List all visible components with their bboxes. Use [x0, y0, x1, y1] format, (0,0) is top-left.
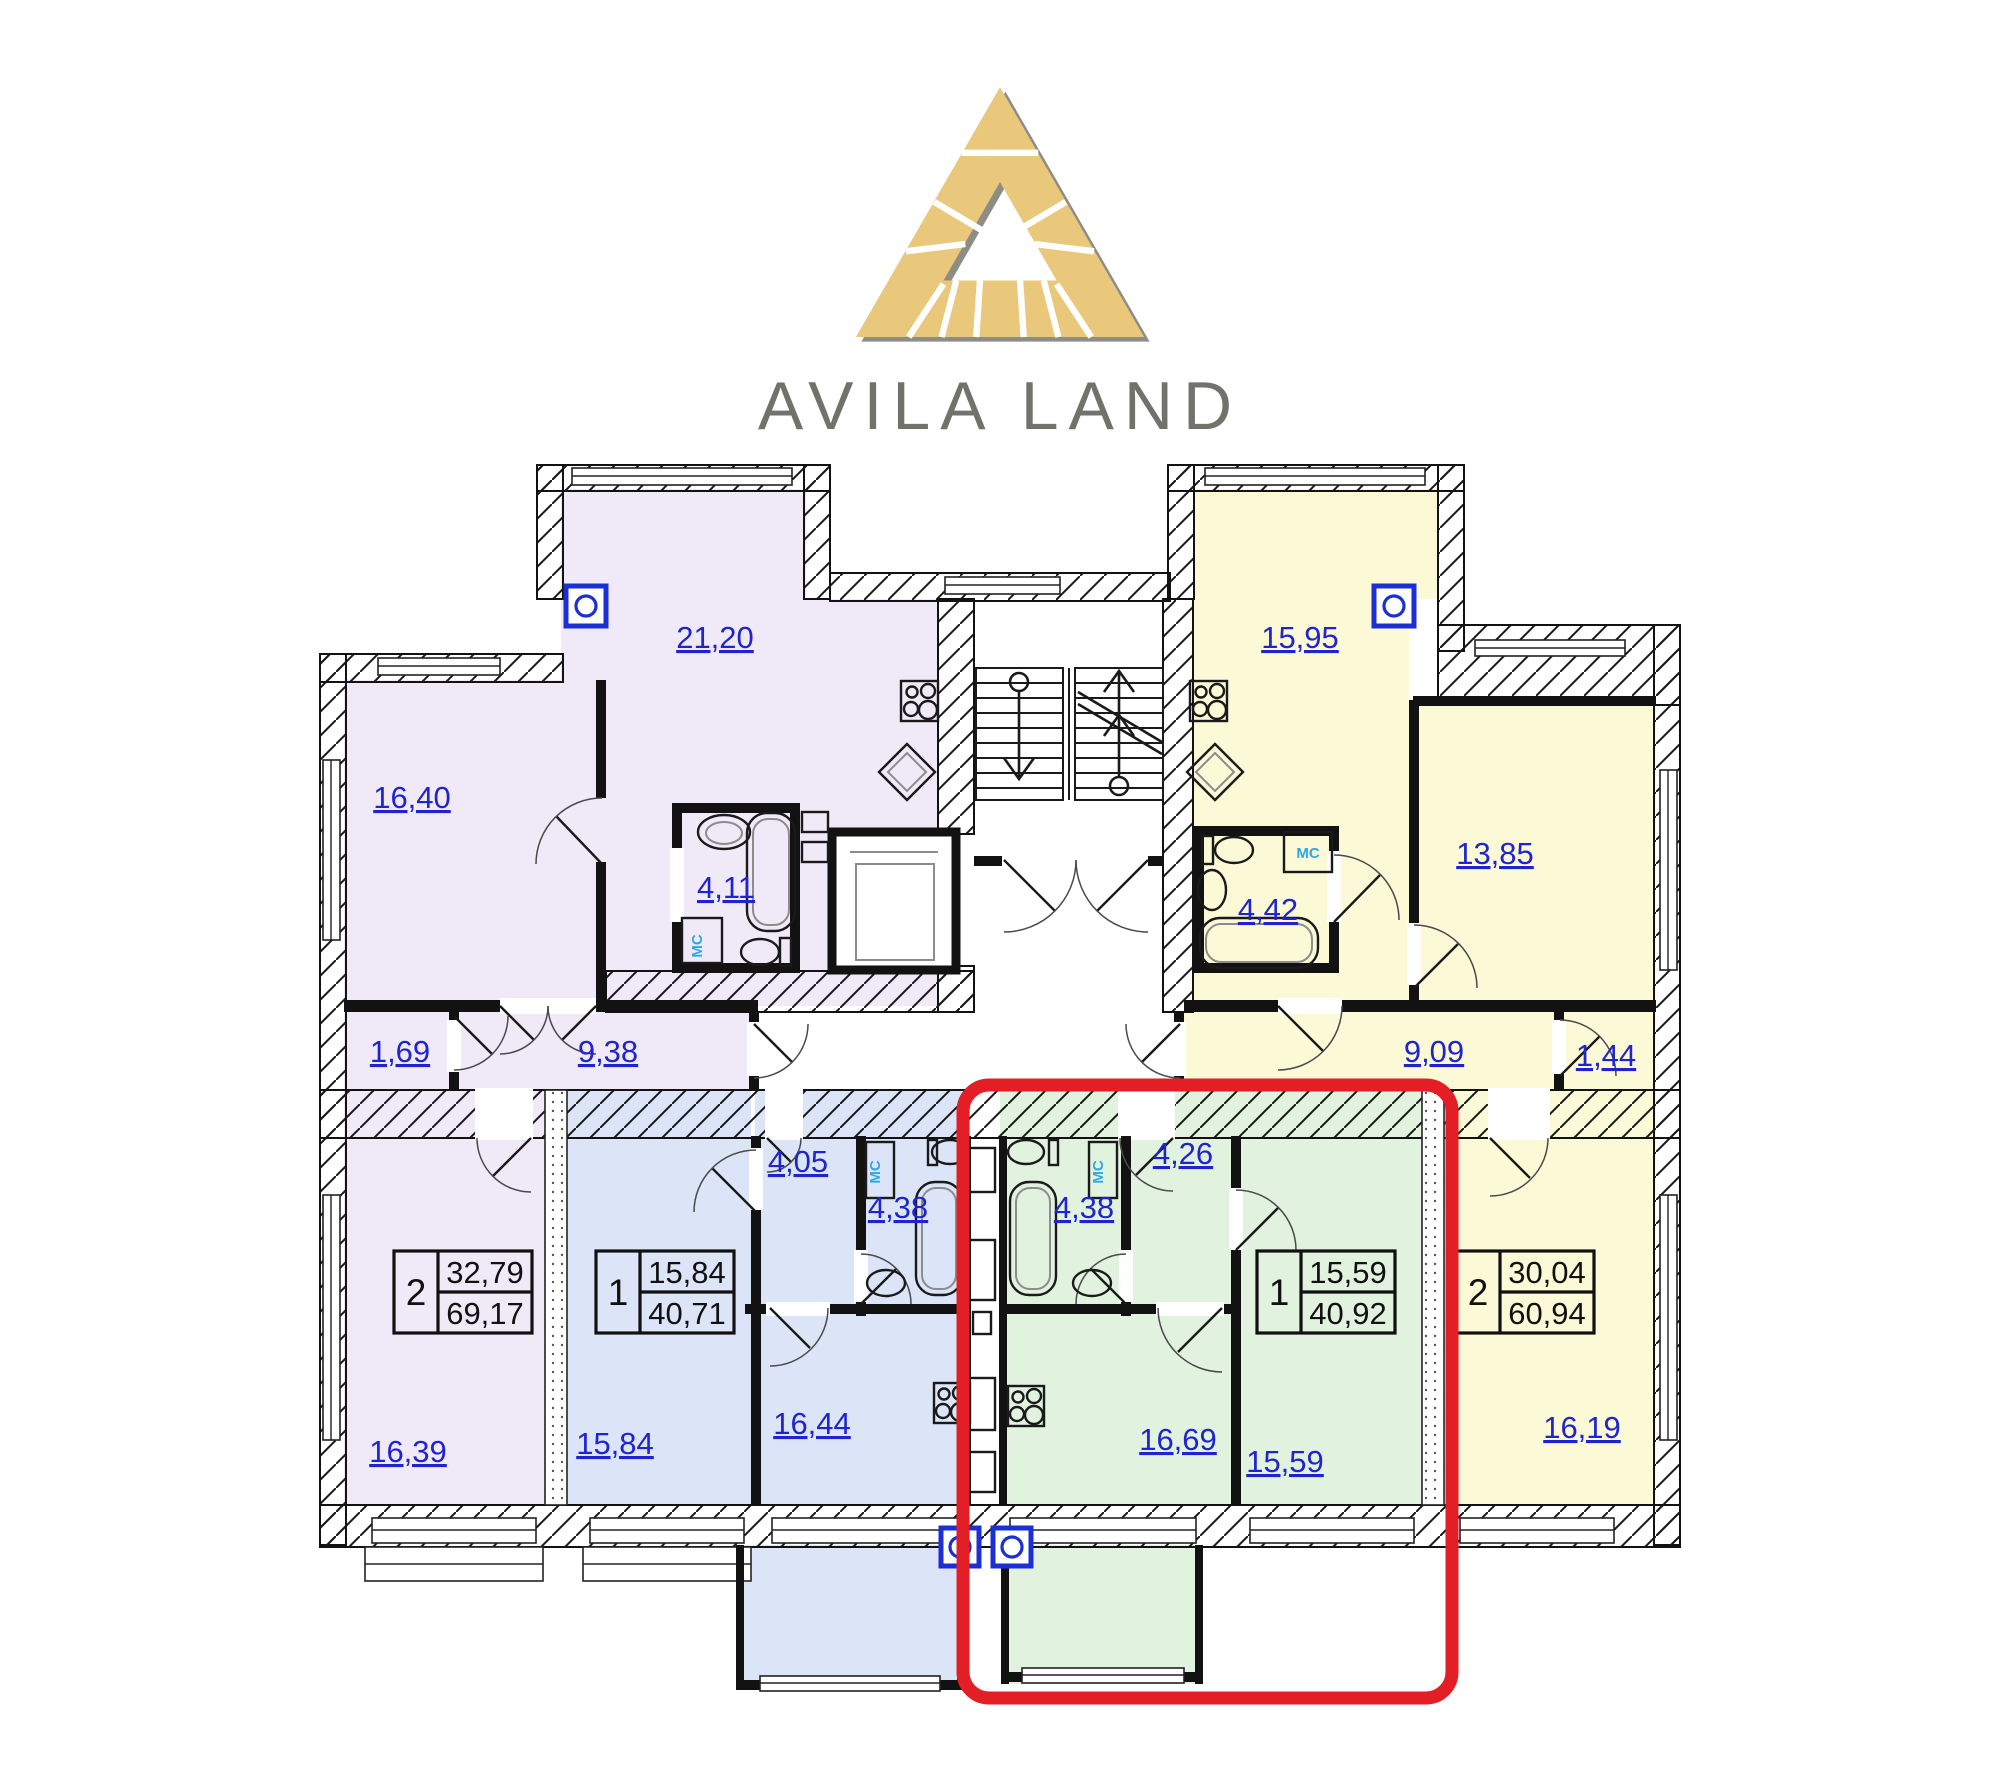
room-area-label: 16,44	[773, 1406, 851, 1441]
stair-direction-arrows	[1004, 671, 1162, 795]
door	[754, 1024, 808, 1078]
window	[378, 658, 500, 675]
mc-label: МС	[1090, 1160, 1107, 1183]
window	[572, 468, 792, 485]
living-area: 15,59	[1309, 1255, 1387, 1290]
room-area-label: 13,85	[1456, 836, 1534, 871]
rooms-count: 1	[1269, 1272, 1290, 1313]
living-area: 15,84	[648, 1255, 726, 1290]
room-area-label: 1,69	[370, 1034, 430, 1069]
apartment-region-green[interactable]	[1000, 1090, 1422, 1684]
vent-box-icon	[993, 1528, 1031, 1566]
mc-label: МС	[1296, 845, 1319, 862]
window	[945, 577, 1060, 594]
room-area-label: 4,11	[697, 870, 755, 905]
total-area: 60,94	[1508, 1296, 1586, 1331]
window	[372, 1518, 536, 1543]
living-area: 30,04	[1508, 1255, 1586, 1290]
window	[1460, 1518, 1614, 1543]
room-area-label: 4,42	[1238, 892, 1298, 927]
room-area-label: 15,84	[576, 1426, 654, 1461]
vent-box-icon	[1374, 586, 1414, 626]
rooms-count: 2	[1468, 1272, 1489, 1313]
window	[772, 1518, 958, 1543]
service-shafts	[969, 1148, 995, 1492]
floorplan-page: { "brand": { "name": "AVILA LAND" }, "le…	[0, 0, 2000, 1783]
door	[1076, 860, 1148, 932]
apartment-region-blue[interactable]	[567, 1090, 970, 1688]
room-area-label: 16,40	[373, 780, 451, 815]
window	[1250, 1518, 1414, 1543]
door	[1126, 1024, 1180, 1078]
rooms-count: 1	[608, 1272, 629, 1313]
mc-label: МС	[689, 934, 706, 957]
apartment-card-blue[interactable]: 1 15,84 40,71	[596, 1251, 734, 1333]
room-area-label: 4,38	[868, 1190, 928, 1225]
room-area-label: 9,38	[578, 1034, 638, 1069]
room-area-label: 4,05	[768, 1144, 828, 1179]
apartment-card-yellow[interactable]: 2 30,04 60,94	[1456, 1251, 1594, 1333]
staircase	[976, 668, 1163, 800]
room-area-label: 15,59	[1246, 1444, 1324, 1479]
window	[1010, 1518, 1196, 1543]
window	[1660, 1195, 1677, 1440]
vent-box-icon	[566, 586, 606, 626]
total-area: 40,71	[648, 1296, 726, 1331]
room-area-label: 4,26	[1153, 1136, 1213, 1171]
room-area-label: 4,38	[1054, 1190, 1114, 1225]
living-area: 32,79	[446, 1255, 524, 1290]
door	[1004, 860, 1076, 932]
window	[1475, 640, 1625, 656]
apartment-card-purple[interactable]: 2 32,79 69,17	[394, 1251, 532, 1333]
apartment-card-green[interactable]: 1 15,59 40,92	[1257, 1251, 1395, 1333]
total-area: 69,17	[446, 1296, 524, 1331]
room-area-label: 16,69	[1139, 1422, 1217, 1457]
window	[323, 760, 340, 940]
room-area-label: 9,09	[1404, 1034, 1464, 1069]
mc-label: МС	[867, 1160, 884, 1183]
rooms-count: 2	[406, 1272, 427, 1313]
window	[323, 1195, 340, 1440]
room-area-label: 1,44	[1576, 1038, 1636, 1073]
room-area-label: 16,19	[1543, 1410, 1621, 1445]
window	[1660, 770, 1677, 970]
room-area-label: 16,39	[369, 1434, 447, 1469]
window-sills	[365, 1547, 751, 1581]
floor-plan: МС МС МС МС 21,20 16,40 4,11 1,69 9,38 1…	[0, 0, 2000, 1783]
window	[1205, 468, 1425, 485]
room-area-label: 15,95	[1261, 620, 1339, 655]
window	[590, 1518, 744, 1543]
room-area-label: 21,20	[676, 620, 754, 655]
total-area: 40,92	[1309, 1296, 1387, 1331]
